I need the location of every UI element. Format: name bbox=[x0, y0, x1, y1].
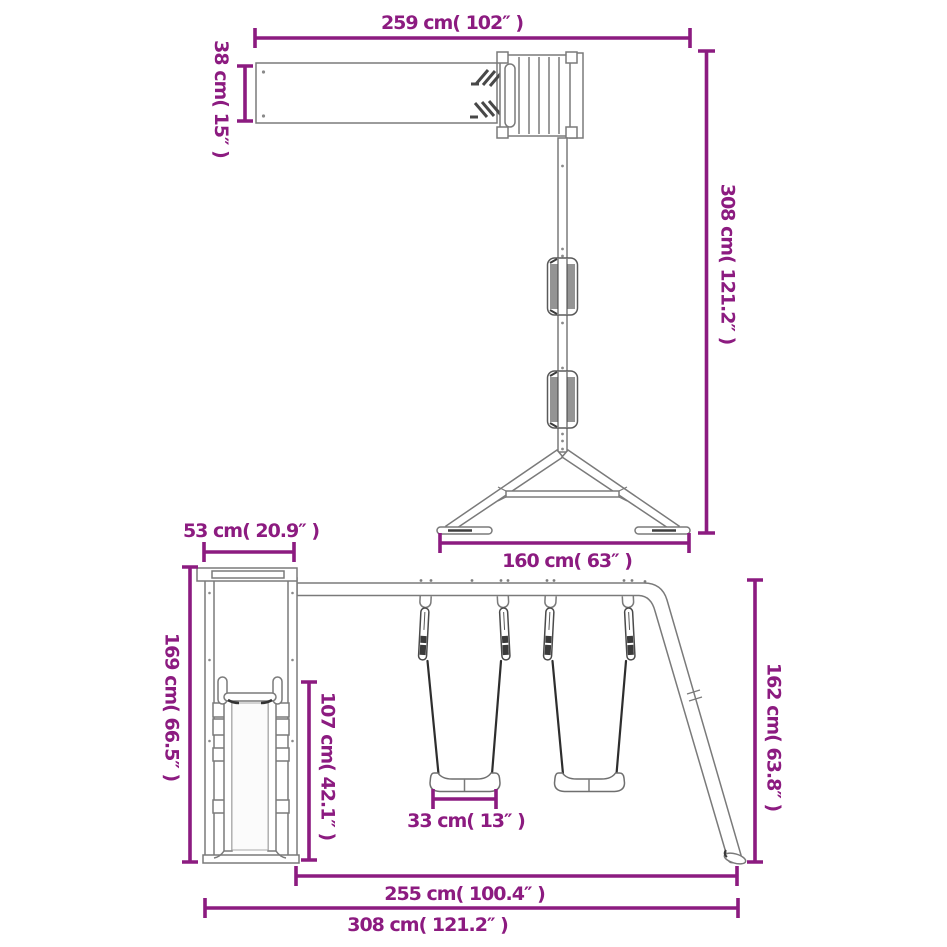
swing-ropes bbox=[428, 661, 627, 774]
dimline-slide-tower-depth bbox=[204, 542, 294, 562]
swing-hanger bbox=[417, 596, 431, 660]
label-swing-section-length: 255 cm( 100.4″ ) bbox=[384, 883, 545, 905]
label-swing-seat-clearance: 107 cm( 42.1″ ) bbox=[317, 692, 339, 841]
label-swingset-total-length: 308 cm( 121.2″ ) bbox=[347, 914, 508, 936]
diagram-canvas: 259 cm( 102″ ) 38 cm( 15″ ) 308 cm( 121.… bbox=[0, 0, 947, 947]
swing-leg-foot bbox=[723, 851, 747, 866]
pole-clamp-upper bbox=[548, 258, 578, 315]
dimline-monkeybar-total-height bbox=[698, 51, 715, 533]
pole-clamp-lower bbox=[548, 371, 578, 428]
dimline-slide-tower-height bbox=[182, 567, 198, 862]
slide bbox=[214, 677, 286, 858]
label-monkeybar-base-width: 160 cm( 63″ ) bbox=[502, 550, 632, 572]
dimline-monkeybar-beam-height bbox=[237, 66, 253, 121]
label-slide-tower-height: 169 cm( 66.5″ ) bbox=[161, 633, 183, 782]
swing-hanger bbox=[622, 596, 636, 660]
slide-handle bbox=[218, 677, 282, 704]
swing-hanger bbox=[542, 596, 556, 660]
swing-seat bbox=[555, 773, 625, 792]
label-monkeybar-length: 259 cm( 102″ ) bbox=[381, 12, 523, 34]
a-frame-base bbox=[437, 450, 690, 534]
dimline-swing-frame-height bbox=[747, 580, 763, 862]
swing-hanger bbox=[497, 596, 511, 660]
dimline-swing-seat-clearance bbox=[301, 682, 317, 860]
label-swing-frame-height: 162 cm( 63.8″ ) bbox=[763, 663, 785, 812]
dimension-diagram: 259 cm( 102″ ) 38 cm( 15″ ) 308 cm( 121.… bbox=[0, 0, 947, 947]
monkeybar-unit bbox=[256, 52, 690, 534]
ladder-top-view bbox=[497, 52, 583, 138]
label-monkeybar-beam-height: 38 cm( 15″ ) bbox=[210, 40, 232, 158]
label-slide-tower-depth: 53 cm( 20.9″ ) bbox=[183, 520, 319, 542]
swing-hangers bbox=[417, 596, 637, 660]
label-swing-seat-width: 33 cm( 13″ ) bbox=[407, 810, 525, 832]
label-monkeybar-total-height: 308 cm( 121.2″ ) bbox=[717, 184, 739, 345]
swing-seat bbox=[430, 773, 500, 792]
monkeybar-beam bbox=[256, 63, 497, 123]
